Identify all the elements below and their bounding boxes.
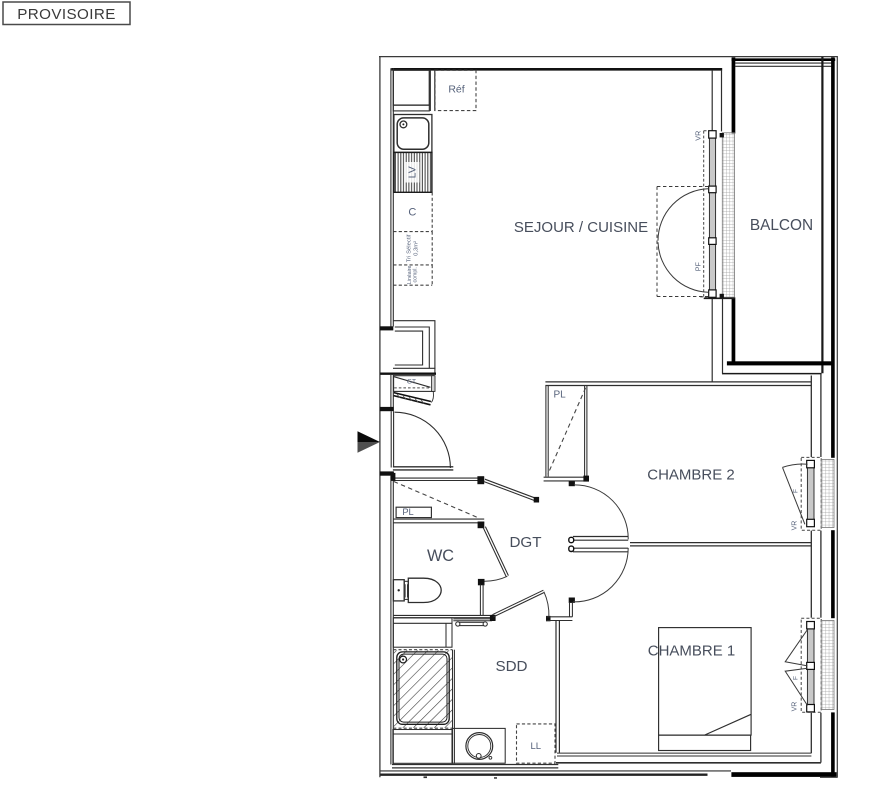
svg-text:VR: VR [791,702,798,712]
svg-text:PROVISOIRE: PROVISOIRE [17,6,116,23]
svg-text:SDD: SDD [495,658,527,675]
svg-text:VR: VR [791,521,798,531]
svg-text:F: F [793,676,800,680]
svg-text:VR: VR [694,131,703,141]
svg-text:PL: PL [554,390,567,401]
svg-text:0,3m²: 0,3m² [413,241,419,256]
svg-text:BALCON: BALCON [750,217,813,234]
svg-text:WC: WC [427,547,454,565]
svg-text:GT: GT [407,379,416,386]
svg-text:Tri Sélectif: Tri Sélectif [406,234,412,262]
svg-text:Réf: Réf [448,84,464,96]
svg-text:LL: LL [531,741,542,752]
svg-text:PF: PF [694,261,703,271]
svg-text:compl.: compl. [413,267,419,282]
svg-text:C: C [408,206,416,218]
svg-text:PL: PL [402,507,413,517]
svg-text:DGT: DGT [509,534,541,551]
svg-text:LV: LV [407,166,419,178]
svg-text:CHAMBRE 2: CHAMBRE 2 [647,467,735,484]
svg-text:CHAMBRE 1: CHAMBRE 1 [648,643,736,660]
svg-text:F: F [793,489,800,493]
svg-text:SEJOUR / CUISINE: SEJOUR / CUISINE [514,219,648,236]
